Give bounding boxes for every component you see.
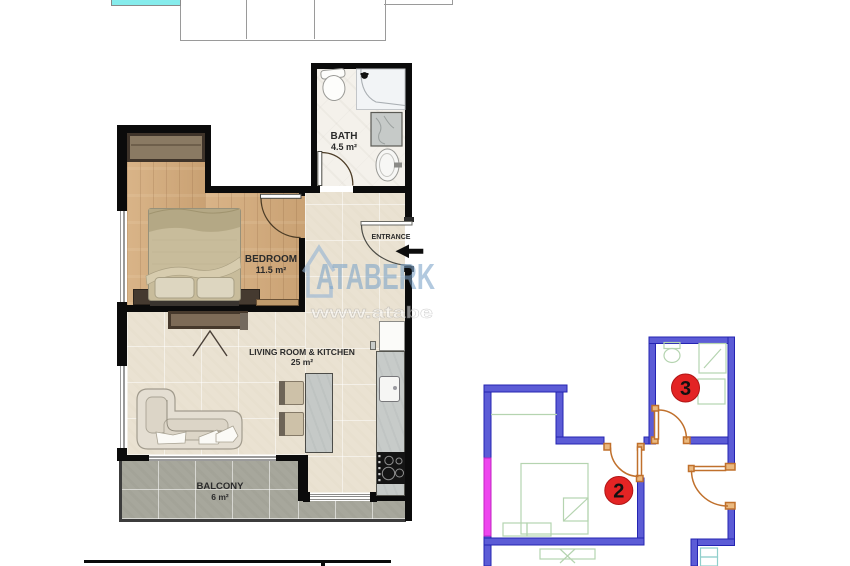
svg-text:2: 2 — [613, 481, 624, 503]
svg-text:ATABERK: ATABERK — [316, 256, 435, 297]
svg-text:3: 3 — [680, 378, 691, 400]
svg-text:www.atabe: www.atabe — [310, 303, 433, 322]
